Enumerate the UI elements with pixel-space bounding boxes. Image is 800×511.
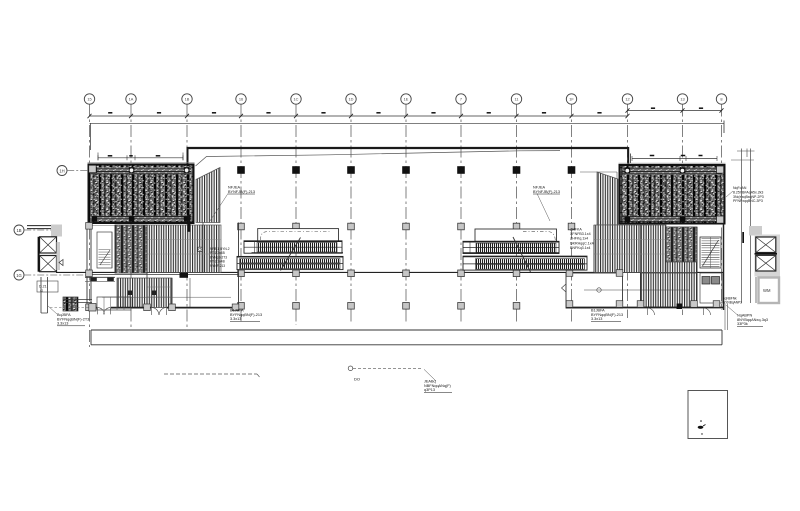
svg-text:1B: 1B [185, 97, 190, 102]
svg-text:1G: 1G [16, 273, 22, 278]
svg-text:3.3x13: 3.3x13 [591, 317, 602, 321]
svg-text:x2: x2 [40, 289, 44, 293]
svg-text:3NqYxqBxqNP-2P3: 3NqYxqBxqNP-2P3 [733, 195, 764, 199]
svg-text:BYNFJB(F)-213: BYNFJB(F)-213 [228, 190, 255, 194]
svg-text:DO: DO [354, 377, 360, 382]
svg-text:BYNFJB(F)-213: BYNFJB(F)-213 [533, 190, 560, 194]
svg-text:13: 13 [680, 97, 684, 102]
svg-text:7: 7 [460, 97, 462, 102]
svg-text:ZHFKq.1x4: ZHFKq.1x4 [570, 237, 588, 241]
svg-text:1E: 1E [404, 97, 409, 102]
svg-text:1F: 1F [569, 97, 574, 102]
svg-text:1A: 1A [129, 97, 134, 102]
svg-text:1C: 1C [294, 97, 299, 102]
svg-text:XFNFB3.1x4: XFNFB3.1x4 [570, 232, 591, 236]
svg-text:ZRFKA: ZRFKA [570, 228, 582, 232]
svg-text:PFNPxqqBNC-3P3: PFNPxqqBNC-3P3 [733, 199, 763, 203]
svg-text:q3P13: q3P13 [424, 388, 435, 392]
svg-text:NqFqAN: NqFqAN [733, 186, 747, 190]
svg-text:1D: 1D [349, 97, 354, 102]
svg-text:11: 11 [514, 97, 518, 102]
svg-text:1B: 1B [16, 228, 21, 233]
svg-text:15: 15 [87, 97, 91, 102]
svg-text:1H: 1H [59, 168, 64, 173]
svg-text:16: 16 [239, 97, 243, 102]
svg-text:12: 12 [625, 97, 629, 102]
svg-text:NYNF-213: NYNF-213 [210, 264, 225, 268]
svg-text:3.3x13: 3.3x13 [57, 322, 68, 326]
svg-text:3.3x13: 3.3x13 [230, 317, 241, 321]
svg-text:8: 8 [720, 97, 722, 102]
svg-text:WM: WM [763, 288, 771, 293]
svg-text:NYNBqANP3: NYNBqANP3 [723, 300, 742, 304]
svg-text:8.25YBFAqA5x.2k3: 8.25YBFAqA5x.2k3 [733, 190, 763, 194]
svg-text:BNFKq3.1x4: BNFKq3.1x4 [570, 246, 590, 250]
svg-text:33P3k: 33P3k [737, 322, 748, 326]
svg-text:DKRHqqC.1x4: DKRHqqC.1x4 [570, 241, 594, 245]
